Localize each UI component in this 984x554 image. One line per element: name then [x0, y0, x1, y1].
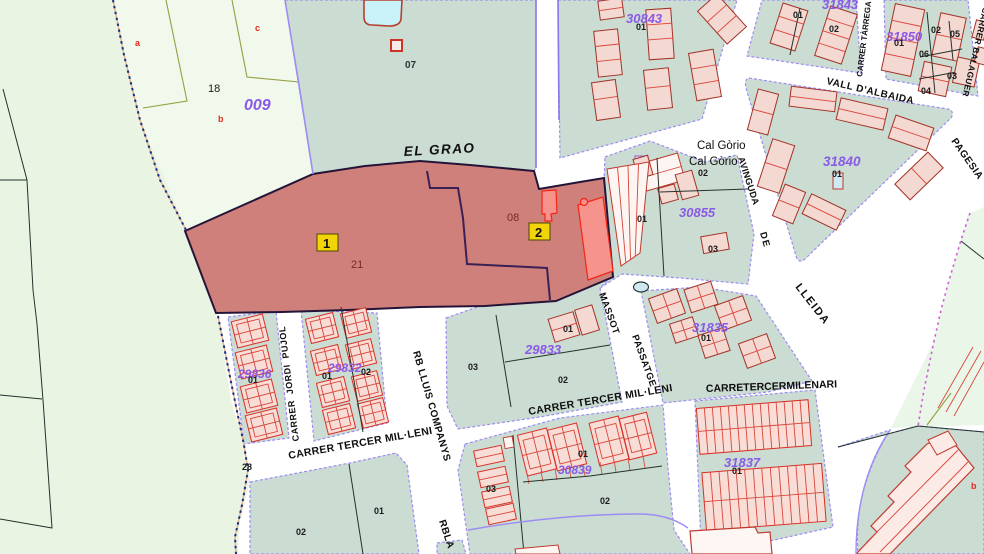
svg-text:07: 07: [405, 60, 417, 71]
svg-text:02: 02: [931, 25, 941, 35]
svg-text:30855: 30855: [679, 205, 716, 220]
svg-text:02: 02: [558, 375, 568, 385]
svg-text:03: 03: [486, 484, 496, 494]
svg-text:02: 02: [361, 367, 371, 377]
svg-text:31843: 31843: [822, 0, 859, 12]
svg-text:01: 01: [563, 324, 573, 334]
svg-text:02: 02: [698, 168, 708, 178]
svg-text:009: 009: [244, 97, 271, 114]
svg-text:08: 08: [507, 212, 519, 224]
svg-text:01: 01: [793, 10, 803, 20]
svg-text:2: 2: [535, 225, 542, 240]
svg-text:01: 01: [732, 466, 742, 476]
svg-text:01: 01: [578, 449, 588, 459]
svg-text:28: 28: [242, 462, 252, 472]
svg-text:18: 18: [208, 83, 220, 95]
svg-text:04: 04: [921, 86, 931, 96]
svg-text:31840: 31840: [823, 154, 861, 169]
svg-text:c: c: [255, 23, 260, 33]
svg-text:31837: 31837: [724, 455, 761, 470]
svg-text:01: 01: [248, 375, 258, 385]
svg-text:01: 01: [637, 214, 647, 224]
svg-text:Cal Gòrio: Cal Gòrio: [697, 140, 746, 152]
svg-text:01: 01: [832, 169, 842, 179]
svg-text:01: 01: [894, 38, 904, 48]
svg-text:b: b: [218, 114, 224, 124]
svg-text:02: 02: [296, 527, 306, 537]
svg-text:05: 05: [950, 29, 960, 39]
svg-text:03: 03: [708, 244, 718, 254]
svg-text:06: 06: [919, 49, 929, 59]
svg-text:1: 1: [323, 236, 330, 251]
svg-text:21: 21: [351, 259, 363, 271]
svg-text:Cal Gòrio: Cal Gòrio: [689, 156, 738, 168]
svg-text:01: 01: [374, 506, 384, 516]
svg-text:03: 03: [468, 362, 478, 372]
svg-text:29832: 29832: [327, 361, 362, 375]
svg-text:01: 01: [322, 371, 332, 381]
svg-text:02: 02: [829, 24, 839, 34]
svg-text:30839: 30839: [558, 463, 592, 477]
svg-text:01: 01: [701, 333, 711, 343]
svg-text:02: 02: [600, 496, 610, 506]
svg-text:29833: 29833: [524, 342, 562, 357]
svg-text:03: 03: [947, 71, 957, 81]
svg-text:31850: 31850: [886, 29, 923, 44]
svg-text:b: b: [971, 481, 977, 491]
svg-text:01: 01: [636, 22, 646, 32]
